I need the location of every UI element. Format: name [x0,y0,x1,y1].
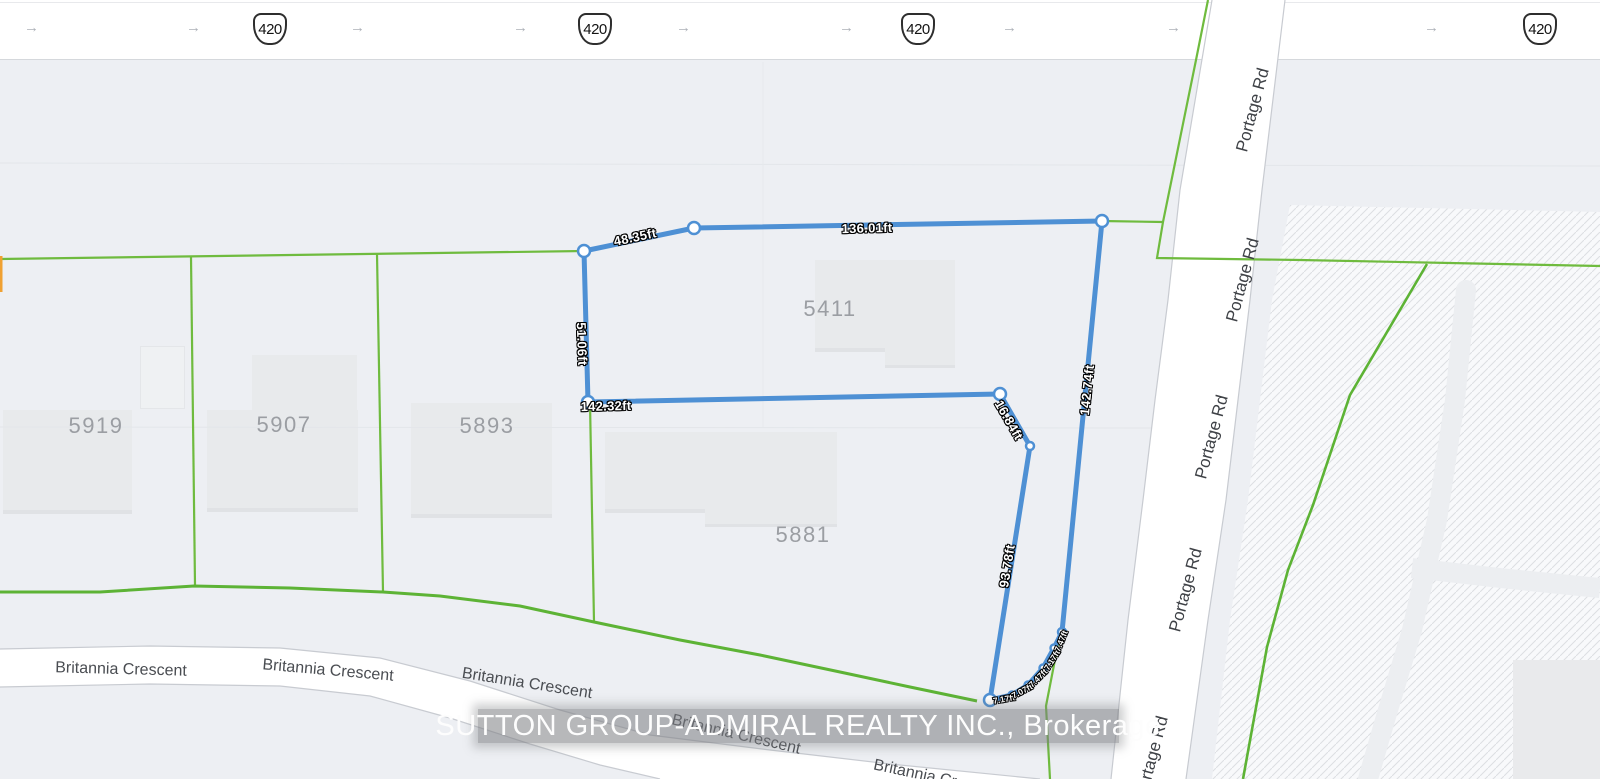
survey-vertex[interactable] [688,222,700,234]
route-arrow-icon: → [186,20,201,35]
shield-label: 420 [258,21,282,38]
survey-polygon[interactable] [584,221,1102,700]
parcel-divider [191,257,195,585]
shield-label: 420 [583,21,607,38]
grid-line [0,163,1600,166]
shield-label: 420 [1528,21,1552,38]
measurement-label: 142.32ft [580,398,631,414]
route-arrow-icon: → [24,20,39,35]
building-corner [1513,660,1600,779]
route-arrow-icon: → [513,20,528,35]
shield-label: 420 [906,21,930,38]
measurement-label: 136.01ft [841,220,892,236]
house-number-5893: 5893 [460,413,515,439]
grid-line [0,427,1160,428]
route-arrow-icon: → [839,20,854,35]
house-number-5907: 5907 [257,412,312,438]
measurement-label: 51.06ft [574,322,591,366]
route-arrow-icon: → [1424,20,1439,35]
house-number-5881: 5881 [776,522,831,548]
watermark-text: SUTTON GROUP-ADMIRAL REALTY INC., Broker… [435,710,1161,743]
survey-vertex[interactable] [1096,215,1108,227]
house-number-5411: 5411 [803,296,856,322]
survey-vertex[interactable] [1026,442,1034,450]
map-linework [0,0,1600,779]
parcel-line-connector [1102,221,1163,222]
parcel-divider [590,402,594,622]
brokerage-watermark: SUTTON GROUP-ADMIRAL REALTY INC., Broker… [478,709,1119,743]
parcel-line-top [0,251,584,259]
parcel-divider [377,254,383,592]
route-arrow-icon: → [1166,20,1181,35]
survey-vertex[interactable] [578,245,590,257]
road-label-britannia: Britannia Crescent [55,659,187,680]
route-arrow-icon: → [1002,20,1017,35]
map-canvas[interactable]: 420 420 420 420 → → → → → → → → → 5919 5… [0,0,1600,779]
route-arrow-icon: → [676,20,691,35]
route-arrow-icon: → [350,20,365,35]
house-number-5919: 5919 [69,413,124,439]
